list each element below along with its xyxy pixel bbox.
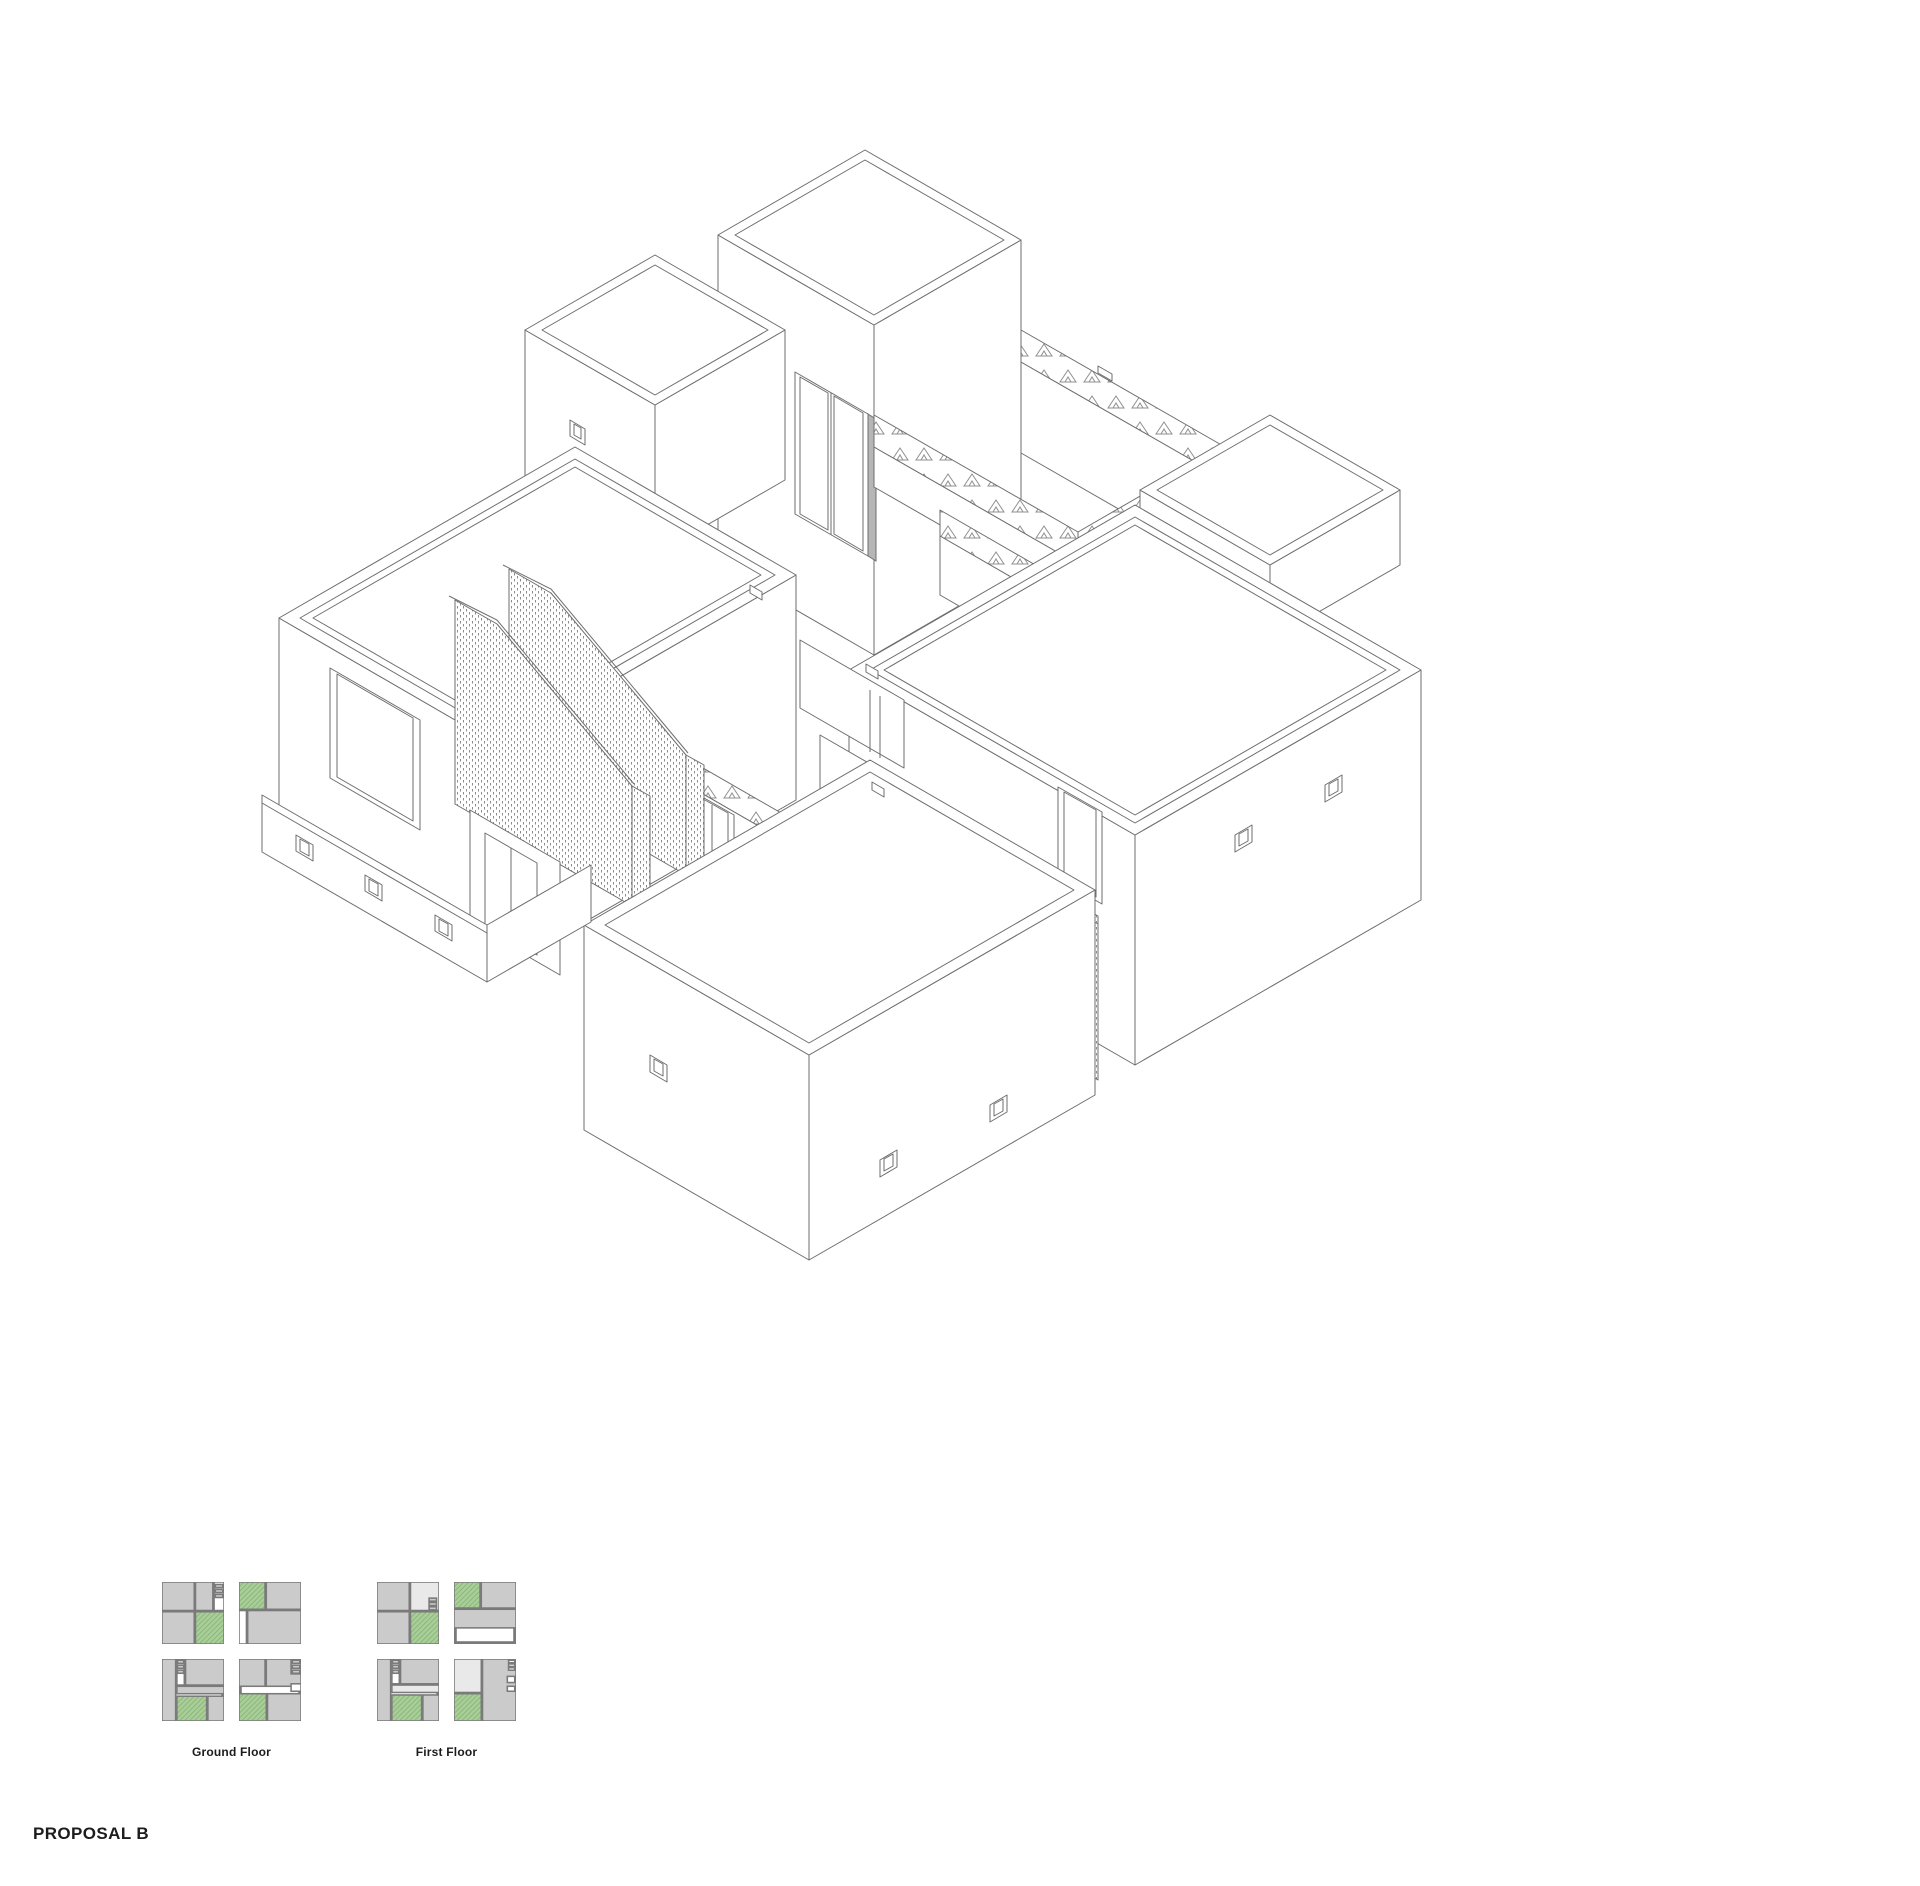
- floor-plan-thumbnail: [377, 1659, 439, 1721]
- floor-plan-thumbnail: [239, 1659, 301, 1721]
- floor-plan-thumbnail: [162, 1582, 224, 1644]
- floor-plan-thumbnail: [377, 1582, 439, 1644]
- legend-label: Ground Floor: [162, 1745, 301, 1759]
- floor-plan-thumbnail: [239, 1582, 301, 1644]
- legend-label: First Floor: [377, 1745, 516, 1759]
- floor-plan-thumbnail: [454, 1659, 516, 1721]
- floor-plan-thumbnail: [162, 1659, 224, 1721]
- floor-plan-thumbnail: [454, 1582, 516, 1644]
- page-title: PROPOSAL B: [33, 1824, 149, 1844]
